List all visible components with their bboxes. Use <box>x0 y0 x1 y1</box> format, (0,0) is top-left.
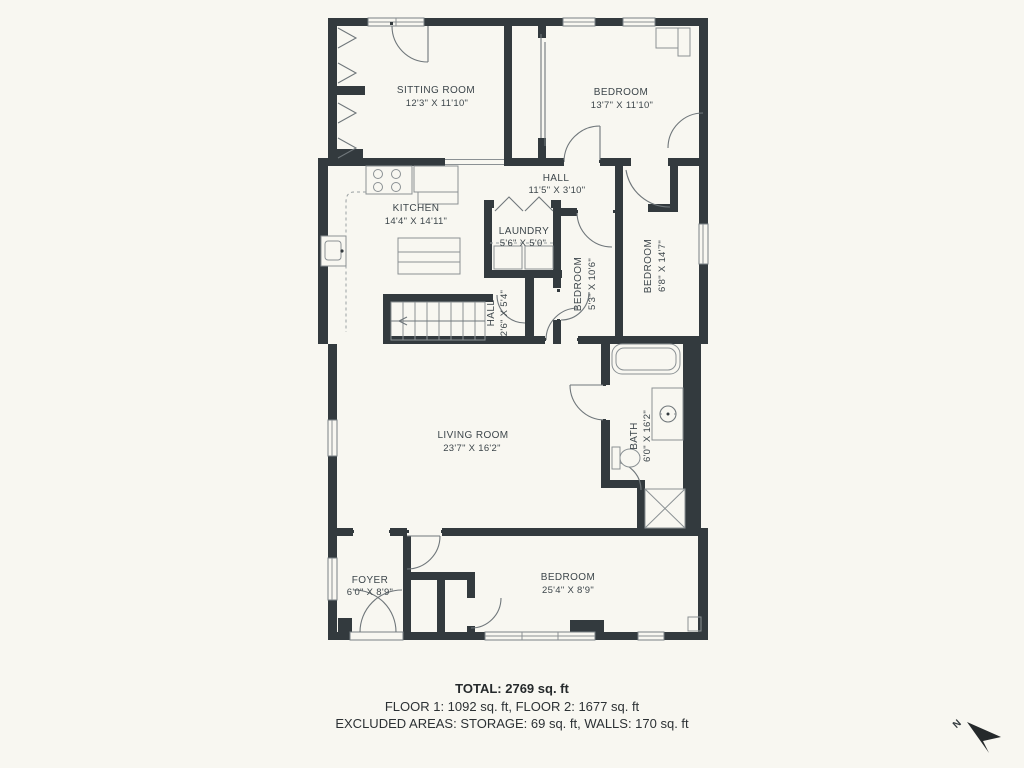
room-dims: 13'7" X 11'10" <box>591 100 653 111</box>
room-name: BEDROOM <box>573 257 584 311</box>
north-arrow: N <box>951 718 1001 753</box>
room-dims: 6'0" X 8'9" <box>347 587 393 598</box>
room-name: HALL <box>543 173 570 184</box>
room-label-hall-upper: HALL 11'5" X 3'10" <box>529 173 586 196</box>
room-dims: 6'0" X 16'2" <box>642 410 653 462</box>
total-area-text: TOTAL: 2769 sq. ft <box>455 681 569 696</box>
room-dims: 14'4" X 14'11" <box>385 216 447 227</box>
room-dims: 25'4" X 8'9" <box>542 585 594 596</box>
room-label-kitchen: KITCHEN 14'4" X 14'11" <box>385 203 447 227</box>
room-label-bedroom-right: BEDROOM 6'8" X 14'7" <box>643 239 668 293</box>
room-label-foyer: FOYER 6'0" X 8'9" <box>347 575 393 598</box>
north-arrow-icon <box>967 722 1001 753</box>
room-name: HALL <box>486 300 497 327</box>
north-label: N <box>951 718 964 731</box>
room-dims: 23'7" X 16'2" <box>443 443 501 454</box>
room-dims: 11'5" X 3'10" <box>529 185 586 196</box>
room-label-sitting-room: SITTING ROOM 12'3" X 11'10" <box>397 85 475 109</box>
floor-areas-text: FLOOR 1: 1092 sq. ft, FLOOR 2: 1677 sq. … <box>385 699 640 714</box>
room-name: LIVING ROOM <box>437 430 508 441</box>
kitchen-island <box>398 238 460 274</box>
storage-area <box>645 489 685 528</box>
stove <box>366 166 412 194</box>
room-name: BATH <box>629 422 640 450</box>
room-dims: 6'8" X 14'7" <box>657 240 668 292</box>
area-summary: TOTAL: 2769 sq. ft FLOOR 1: 1092 sq. ft,… <box>335 681 689 731</box>
room-dims: 2'6" X 5'4" <box>499 290 510 336</box>
room-name: BEDROOM <box>594 87 648 98</box>
room-name: SITTING ROOM <box>397 85 475 96</box>
room-name: LAUNDRY <box>499 226 549 237</box>
room-label-laundry: LAUNDRY 5'6" X 5'0" <box>499 226 549 249</box>
room-name: KITCHEN <box>393 203 440 214</box>
room-label-bedroom-bottom: BEDROOM 25'4" X 8'9" <box>541 572 595 596</box>
room-name: FOYER <box>352 575 388 586</box>
room-dims: 12'3" X 11'10" <box>406 98 468 109</box>
bedroom-wardrobe <box>656 28 690 56</box>
excluded-areas-text: EXCLUDED AREAS: STORAGE: 69 sq. ft, WALL… <box>335 716 689 731</box>
room-dims: 5'6" X 5'0" <box>500 238 546 249</box>
walls <box>318 18 708 640</box>
room-dims: 5'3" X 10'6" <box>587 258 598 310</box>
room-label-bedroom-small: BEDROOM 5'3" X 10'6" <box>573 257 598 311</box>
floor-plan-page: SITTING ROOM 12'3" X 11'10" BEDROOM 13'7… <box>0 0 1024 768</box>
floor-plan: SITTING ROOM 12'3" X 11'10" BEDROOM 13'7… <box>0 0 1024 768</box>
room-label-bedroom-top: BEDROOM 13'7" X 11'10" <box>591 87 653 111</box>
room-label-living-room: LIVING ROOM 23'7" X 16'2" <box>437 430 508 454</box>
room-name: BEDROOM <box>541 572 595 583</box>
stairs <box>391 302 485 340</box>
room-name: BEDROOM <box>643 239 654 293</box>
